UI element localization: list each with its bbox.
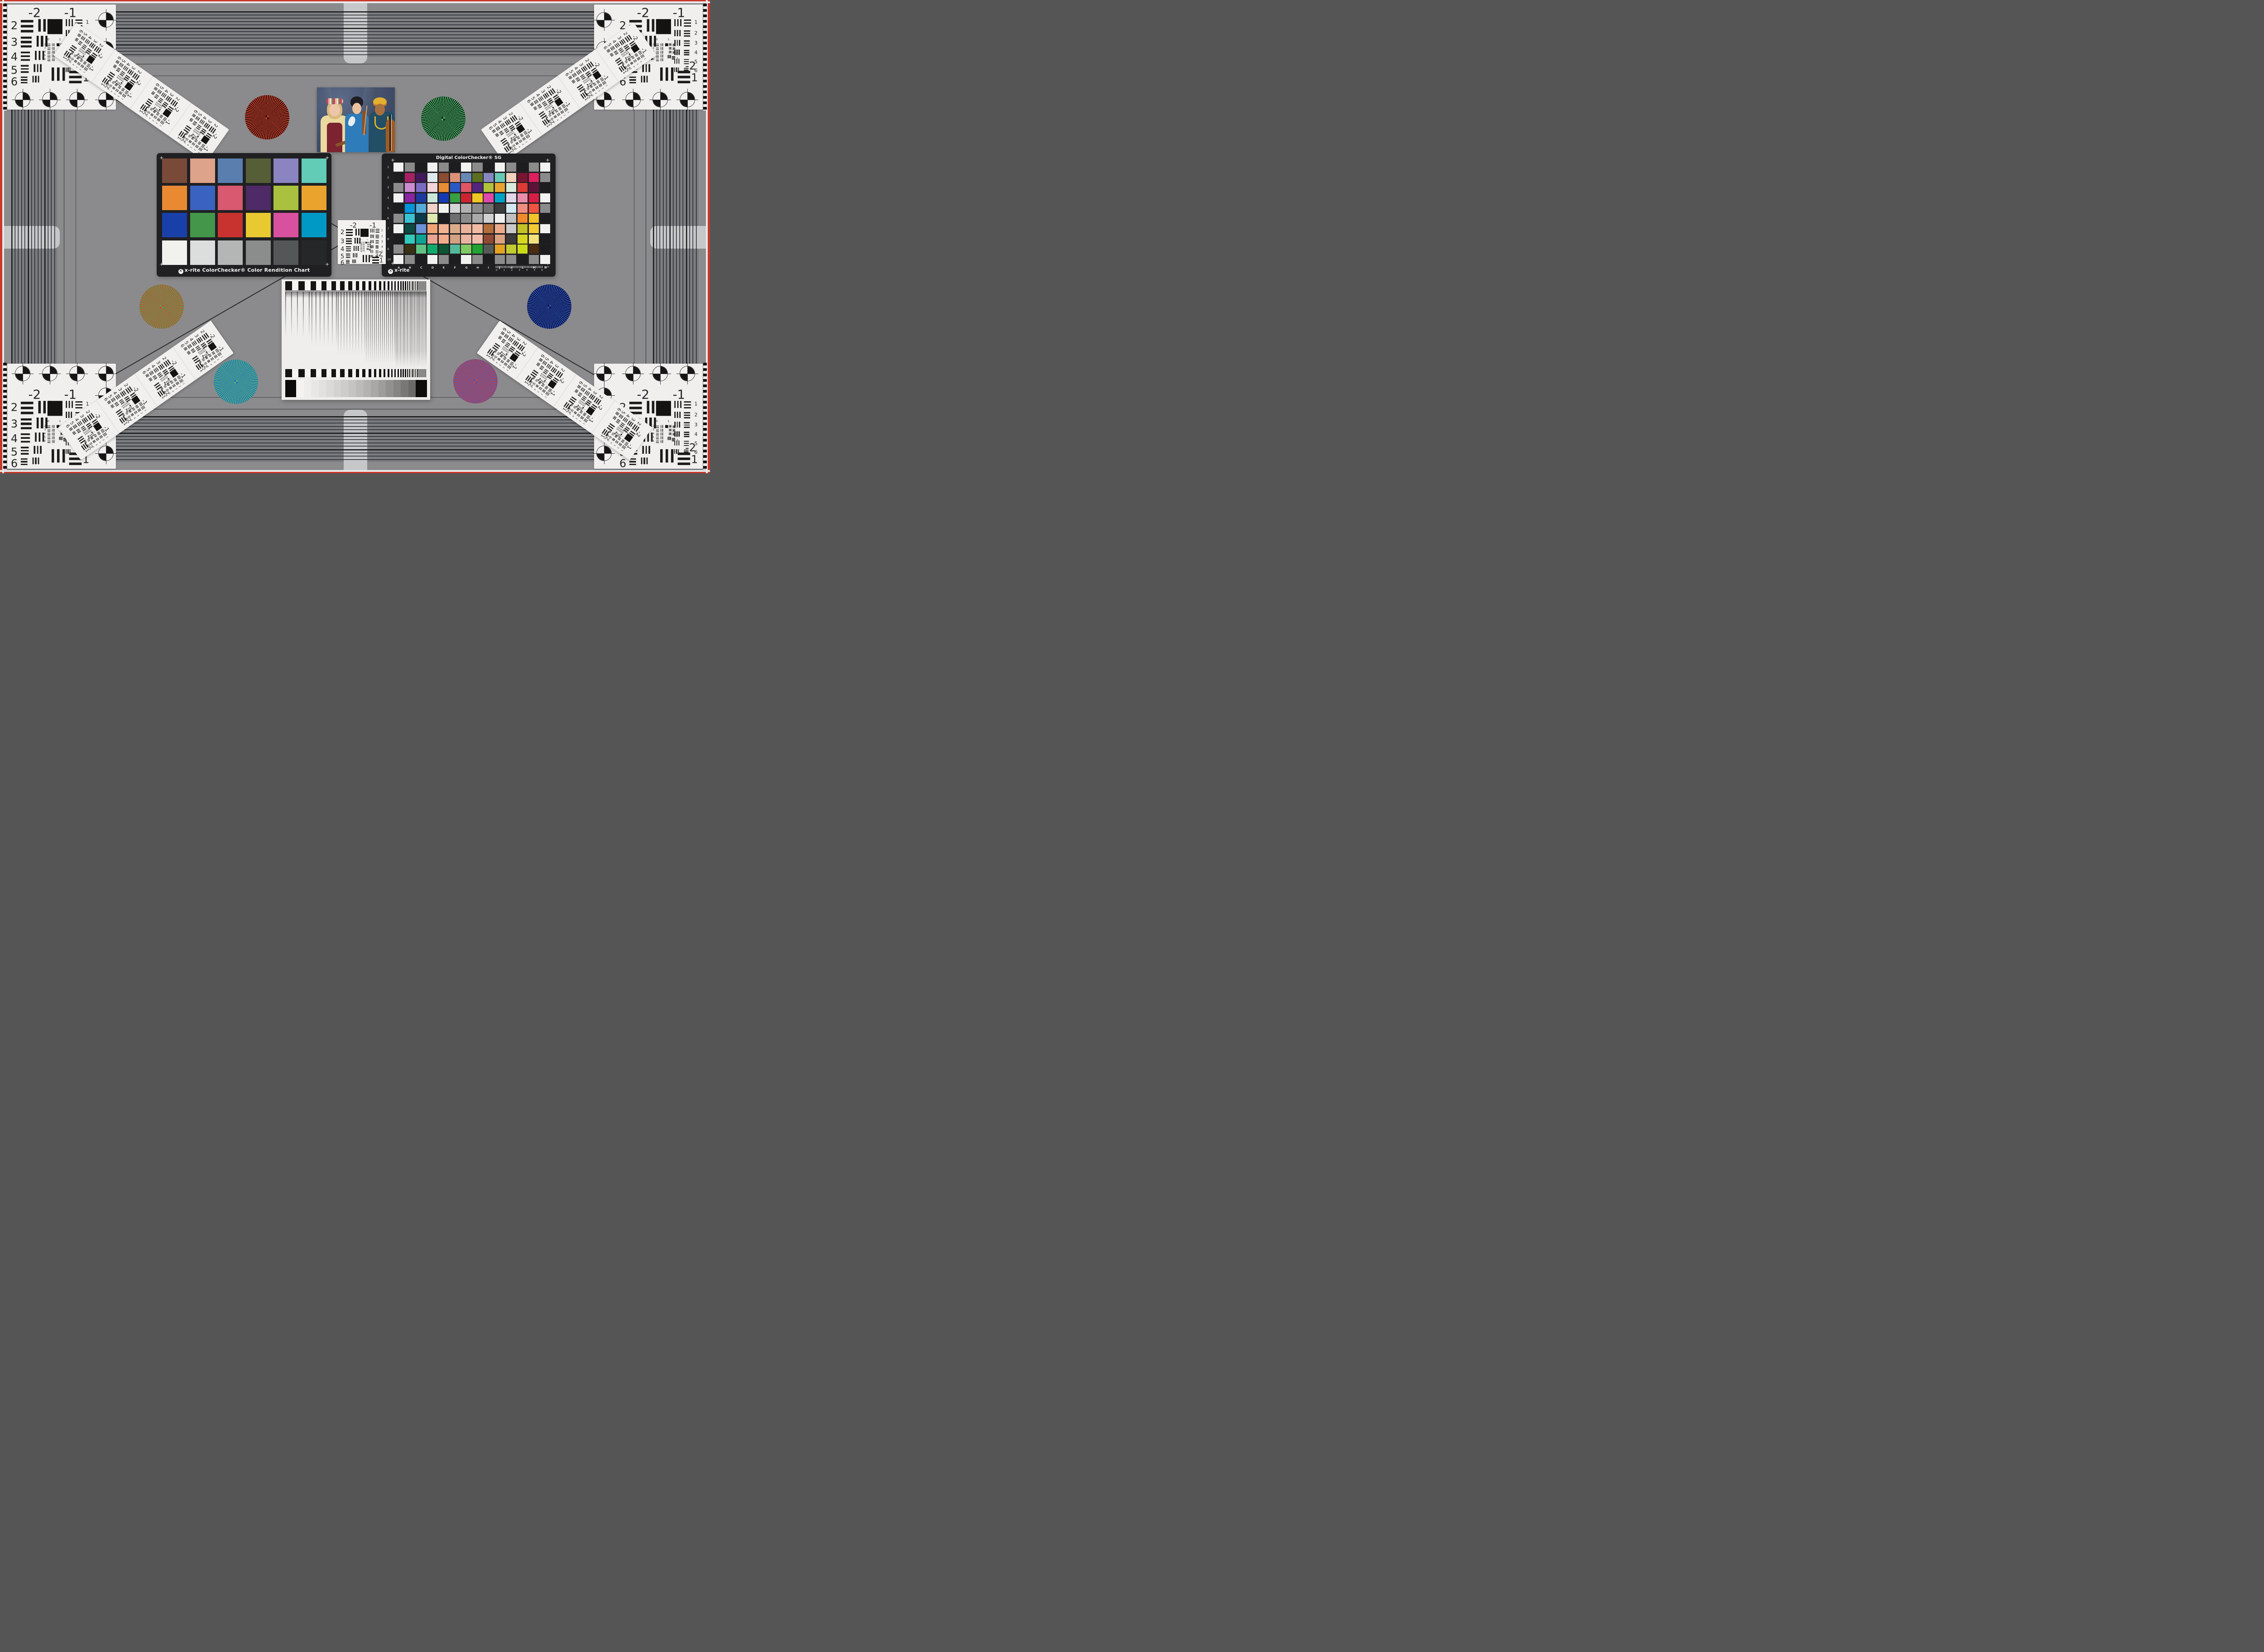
res-bars xyxy=(153,375,158,380)
sg-patch xyxy=(450,235,460,244)
sg-patch xyxy=(461,193,471,202)
res-chart-number: -2 xyxy=(376,251,382,258)
sg-patch xyxy=(472,255,482,264)
res-bars xyxy=(76,429,81,434)
res-chart-number: 1 xyxy=(131,404,133,406)
res-bars xyxy=(507,365,511,369)
res-chart-number: 2 xyxy=(216,359,219,361)
sg-col-label: G xyxy=(465,266,468,269)
res-bars xyxy=(542,360,547,365)
sg-patch xyxy=(518,245,528,254)
sg-patch xyxy=(416,245,426,254)
star-mid-right xyxy=(527,284,571,329)
res-bars xyxy=(500,331,504,335)
sg-patch xyxy=(472,193,482,202)
res-bars xyxy=(630,62,633,65)
res-bars xyxy=(613,416,617,420)
res-bars xyxy=(618,429,619,431)
res-bars xyxy=(122,80,124,82)
res-bars xyxy=(674,19,681,26)
res-bars xyxy=(668,437,671,440)
res-bars xyxy=(145,98,153,106)
crosshair-mark: + xyxy=(325,157,329,159)
red-edge-stripe xyxy=(708,0,710,473)
res-bars xyxy=(346,254,350,258)
res-chart-number: 1 xyxy=(643,58,646,60)
res-bars xyxy=(199,132,201,134)
res-bars xyxy=(52,67,65,81)
res-chart-number: 0 xyxy=(371,247,372,249)
res-bars xyxy=(503,349,505,351)
res-bars xyxy=(363,244,365,245)
res-bars xyxy=(35,51,44,60)
res-bars xyxy=(614,50,619,55)
colorchecker-patch xyxy=(162,240,187,265)
sg-patch xyxy=(450,245,460,254)
res-chart-number: 2 xyxy=(601,87,604,90)
res-chart-number: -2 xyxy=(170,359,177,366)
colorchecker-patch xyxy=(246,158,271,183)
sg-patch xyxy=(427,235,437,244)
sg-patch xyxy=(393,183,403,192)
res-chart-number: 0 xyxy=(656,38,658,42)
res-chart-number: 1 xyxy=(121,98,124,100)
res-bars xyxy=(363,246,365,247)
res-chart-number: 3 xyxy=(98,441,101,443)
res-bars xyxy=(48,429,50,432)
sg-patch xyxy=(506,245,516,254)
res-bars xyxy=(196,337,202,343)
res-bars xyxy=(195,138,197,139)
res-chart-number: -2 xyxy=(554,88,562,96)
res-bars xyxy=(495,126,500,131)
res-bars xyxy=(115,89,119,92)
res-bars xyxy=(656,441,659,443)
step-wedge-patch xyxy=(408,380,416,397)
res-bars xyxy=(210,357,214,361)
sg-patch xyxy=(427,163,437,172)
sg-patch xyxy=(518,235,528,244)
res-bars xyxy=(661,425,663,428)
res-chart-number: 2 xyxy=(341,230,344,236)
res-chart-number: 1 xyxy=(691,72,698,84)
res-bars xyxy=(151,91,155,95)
res-bars xyxy=(119,91,122,95)
res-chart-number: 0 xyxy=(656,420,658,423)
res-bars xyxy=(115,394,120,399)
res-chart-number: 3 xyxy=(575,417,578,419)
res-bars xyxy=(581,66,587,72)
res-bars xyxy=(37,36,48,47)
res-chart-number: 1 xyxy=(198,138,200,139)
res-bars xyxy=(500,123,505,129)
res-bars xyxy=(110,398,115,403)
res-bars xyxy=(188,140,192,143)
res-bars xyxy=(684,40,690,46)
res-bars xyxy=(125,386,133,394)
res-bars xyxy=(661,436,663,439)
sg-patch xyxy=(484,193,494,202)
sg-patch xyxy=(529,214,539,223)
sg-col-label: K xyxy=(510,266,513,269)
res-bars xyxy=(52,47,55,50)
sg-col-label: F xyxy=(454,266,456,269)
res-chart-number: 0 xyxy=(167,374,168,375)
sg-patch xyxy=(506,214,516,223)
sg-patch xyxy=(405,183,415,192)
res-bars xyxy=(84,53,86,55)
res-chart-number: 3 xyxy=(652,47,654,50)
res-bars xyxy=(134,411,137,414)
step-wedge-patch xyxy=(304,380,312,397)
sg-patch xyxy=(540,173,550,182)
res-chart-number: 3 xyxy=(152,119,154,121)
res-bars xyxy=(79,48,81,50)
res-chart-number: 2 xyxy=(124,77,125,79)
res-bars xyxy=(584,390,590,396)
res-bars xyxy=(615,411,619,415)
res-chart-number: 2 xyxy=(86,51,87,52)
res-bars xyxy=(195,144,198,148)
res-bars xyxy=(545,375,547,377)
res-chart-number: 4 xyxy=(210,363,212,365)
res-chart-number: 5 xyxy=(505,346,507,347)
res-bars xyxy=(610,46,615,51)
res-bars xyxy=(612,438,615,441)
res-bars xyxy=(118,77,120,79)
res-chart-number: 2 xyxy=(201,131,202,132)
res-bars xyxy=(116,67,121,72)
sg-patch xyxy=(405,224,415,233)
res-chart-number: -2 xyxy=(637,7,649,20)
res-chart-number: 1 xyxy=(182,383,185,385)
colorchecker-patch xyxy=(190,158,215,183)
res-chart-number: 3 xyxy=(613,444,616,446)
res-bars xyxy=(504,350,506,351)
res-chart-number: 3 xyxy=(137,414,139,417)
res-bars xyxy=(656,48,659,50)
white-edge-stripe xyxy=(0,470,710,472)
sg-patch xyxy=(450,224,460,233)
res-chart-number: -2 xyxy=(208,332,216,340)
res-chart-number: 5 xyxy=(11,65,18,76)
res-bars xyxy=(538,387,542,390)
res-bars xyxy=(619,436,620,437)
res-bars xyxy=(360,250,362,252)
res-chart-number: 0 xyxy=(624,431,626,432)
res-chart-number: 2 xyxy=(44,425,46,428)
res-chart-number: 1 xyxy=(86,19,89,25)
ruler-number: 6 xyxy=(542,269,543,272)
res-bars xyxy=(619,39,625,45)
step-wedge-patch xyxy=(416,380,427,397)
res-chart-number: 1 xyxy=(544,396,547,398)
res-bars xyxy=(674,422,680,427)
res-bars xyxy=(556,113,560,116)
registration-mark xyxy=(597,13,611,27)
res-bars xyxy=(346,238,352,244)
res-bars xyxy=(582,401,584,403)
res-chart-number: 5 xyxy=(11,447,18,458)
res-bars xyxy=(193,130,195,132)
res-bars xyxy=(502,348,504,350)
registration-mark xyxy=(43,92,57,107)
sg-patch xyxy=(484,163,494,172)
res-bars xyxy=(157,105,159,107)
edge-tick-ruler xyxy=(703,363,707,470)
res-chart-number: 3 xyxy=(85,50,86,51)
res-bars xyxy=(161,92,166,98)
sg-patch xyxy=(450,193,460,202)
res-bars xyxy=(674,30,681,36)
res-black-square xyxy=(360,229,369,237)
step-wedge-patch xyxy=(393,380,401,397)
sg-patch xyxy=(495,193,505,202)
res-bars xyxy=(537,104,542,109)
res-chart-number: 0 xyxy=(360,239,361,241)
sg-col-label: D xyxy=(432,266,434,269)
sweep-trumpet-segment xyxy=(396,292,427,368)
res-bars xyxy=(120,390,126,397)
res-bars xyxy=(159,115,163,118)
sg-patch xyxy=(495,235,505,244)
sg-patch xyxy=(484,204,494,213)
res-bars xyxy=(194,131,196,133)
res-bars xyxy=(551,367,557,373)
colorchecker-patch xyxy=(162,213,187,237)
res-bars xyxy=(656,437,659,439)
res-chart-number: 1 xyxy=(691,454,698,466)
res-chart-number: 4 xyxy=(621,427,623,428)
registration-mark xyxy=(99,13,113,27)
sg-patch xyxy=(439,163,449,172)
sg-patch xyxy=(393,245,403,254)
sg-patch xyxy=(484,245,494,254)
res-bars xyxy=(577,413,580,417)
res-chart-number: 5 xyxy=(582,399,583,401)
res-chart-number: 4 xyxy=(72,63,75,66)
res-chart-number: 1 xyxy=(529,138,532,140)
res-mini-square xyxy=(665,425,668,428)
res-chart-number: 4 xyxy=(518,146,521,148)
sg-patch xyxy=(405,204,415,213)
res-bars xyxy=(684,422,690,428)
res-bars xyxy=(539,358,543,362)
sg-row-label: 3 xyxy=(387,186,389,189)
res-bars xyxy=(201,333,209,341)
res-bars xyxy=(508,337,513,342)
sg-patch xyxy=(472,204,482,213)
res-bars xyxy=(620,431,622,432)
res-chart-number: 4 xyxy=(110,90,113,92)
res-bars xyxy=(163,360,171,367)
sg-col-label: N xyxy=(544,266,547,269)
res-chart-number: 1 xyxy=(367,239,368,241)
res-bars xyxy=(74,59,77,62)
sg-row-label: 6 xyxy=(387,216,389,220)
res-bars xyxy=(156,110,157,112)
res-chart-number: 5 xyxy=(359,248,360,250)
sweep-trumpet-segment xyxy=(366,292,396,368)
res-bars xyxy=(149,378,153,382)
res-chart-number: 1 xyxy=(170,378,171,379)
res-chart-number: 3 xyxy=(560,116,562,119)
res-bars xyxy=(678,71,691,83)
res-bars xyxy=(641,76,648,82)
res-bars xyxy=(192,121,197,126)
res-bars xyxy=(533,106,537,110)
sg-patch xyxy=(540,224,550,233)
sg-patch xyxy=(518,204,528,213)
res-bars xyxy=(580,400,582,402)
res-bars xyxy=(123,66,128,71)
res-chart-number: 3 xyxy=(508,348,509,349)
res-chart-number: 3 xyxy=(652,429,654,432)
res-chart-number: 0 xyxy=(513,129,515,130)
res-chart-number: 1 xyxy=(144,409,147,412)
res-chart-number: 4 xyxy=(571,415,574,417)
res-bars xyxy=(77,33,81,37)
step-wedge-patch xyxy=(311,380,319,397)
res-bars xyxy=(52,58,55,61)
colorchecker-patch xyxy=(302,213,326,237)
res-bars xyxy=(504,356,505,357)
res-bars xyxy=(119,85,120,86)
res-bars xyxy=(577,84,585,92)
res-bars xyxy=(640,54,644,58)
res-bars xyxy=(672,438,675,441)
sg-patch xyxy=(439,245,449,254)
res-chart-number: -1 xyxy=(64,7,77,20)
res-bars xyxy=(674,412,681,418)
res-chart-number: 0 xyxy=(676,53,678,56)
res-bars xyxy=(127,69,134,75)
sg-patch xyxy=(405,245,415,254)
sg-patch xyxy=(461,163,471,172)
res-bars xyxy=(82,53,84,54)
xrite-logo-icon: ✕ xyxy=(388,269,393,274)
sg-patch xyxy=(450,183,460,192)
res-chart-number: 4 xyxy=(381,245,383,248)
colorchecker-patch xyxy=(218,240,243,265)
res-bars xyxy=(153,115,157,119)
crosshair-mark: + xyxy=(546,159,550,162)
res-bars xyxy=(505,348,507,350)
sg-patch xyxy=(495,224,505,233)
res-bars xyxy=(114,402,119,407)
res-bars xyxy=(506,351,508,352)
res-chart-number: 4 xyxy=(341,246,344,253)
res-bars xyxy=(536,362,540,366)
sg-patch xyxy=(427,193,437,202)
res-chart-number: 0 xyxy=(548,378,550,379)
res-chart-number: 6 xyxy=(504,345,505,346)
res-bars xyxy=(137,408,141,412)
sg-row-label: 8 xyxy=(387,237,389,241)
res-bars xyxy=(82,417,88,423)
sg-patch xyxy=(393,204,403,213)
colorchecker-patch xyxy=(246,213,271,237)
res-bars xyxy=(544,386,548,389)
res-bars xyxy=(583,413,586,416)
res-bars xyxy=(620,428,622,430)
res-bars xyxy=(673,429,676,432)
sg-patch xyxy=(439,255,449,264)
res-bars xyxy=(510,115,518,123)
step-wedge-patch xyxy=(296,380,304,397)
res-chart-number: 6 xyxy=(44,440,46,443)
sg-col-label: B xyxy=(409,266,411,269)
star-top-right xyxy=(421,96,465,141)
res-bars xyxy=(627,420,633,427)
ruler-number: 3 xyxy=(518,269,520,272)
res-bars xyxy=(87,413,95,421)
step-wedge-patch xyxy=(341,380,349,397)
res-chart-number: 2 xyxy=(617,447,619,449)
res-bars xyxy=(584,82,585,84)
star-hub xyxy=(441,117,446,121)
res-bars xyxy=(595,86,599,90)
sg-patch xyxy=(393,193,403,202)
res-bars xyxy=(503,355,504,356)
res-bars xyxy=(669,43,672,46)
res-bars xyxy=(582,404,584,406)
res-bars xyxy=(530,370,538,378)
res-bars xyxy=(492,343,500,351)
sg-patch xyxy=(529,183,539,192)
res-bars xyxy=(160,107,162,109)
res-chart-number: 1 xyxy=(372,250,373,251)
res-bars xyxy=(596,80,600,84)
star-mid-left xyxy=(139,284,184,329)
sg-patch xyxy=(416,183,426,192)
res-black-square xyxy=(656,401,671,416)
sg-patch xyxy=(416,193,426,202)
res-bars xyxy=(102,432,106,437)
sg-patch xyxy=(461,183,471,192)
res-bars xyxy=(545,378,547,380)
sg-patch xyxy=(529,245,539,254)
res-bars xyxy=(572,73,577,78)
res-bars xyxy=(634,53,638,57)
res-bars xyxy=(661,58,663,61)
res-bars xyxy=(672,56,675,59)
sg-patch xyxy=(416,235,426,244)
res-chart-number: -2 xyxy=(131,386,139,394)
res-chart-number: 3 xyxy=(537,390,539,393)
res-chart-number: 2 xyxy=(193,149,196,151)
sg-patch xyxy=(540,245,550,254)
sg-patch xyxy=(461,204,471,213)
res-chart-number: 5 xyxy=(197,128,198,130)
sg-patch xyxy=(484,173,494,182)
res-bars xyxy=(187,351,191,355)
res-chart-number: 3 xyxy=(381,240,383,243)
res-bars xyxy=(197,130,198,132)
res-bars xyxy=(37,418,48,428)
edge-tick-ruler xyxy=(3,4,7,110)
res-bars xyxy=(35,432,44,442)
res-bars xyxy=(117,75,119,77)
res-bars xyxy=(89,42,95,48)
res-bars xyxy=(21,433,30,442)
sg-patch xyxy=(439,235,449,244)
sg-patch xyxy=(529,255,539,264)
res-bars xyxy=(156,104,158,106)
res-bars xyxy=(669,432,672,435)
step-wedge-patch xyxy=(349,380,356,397)
registration-mark xyxy=(15,366,30,381)
